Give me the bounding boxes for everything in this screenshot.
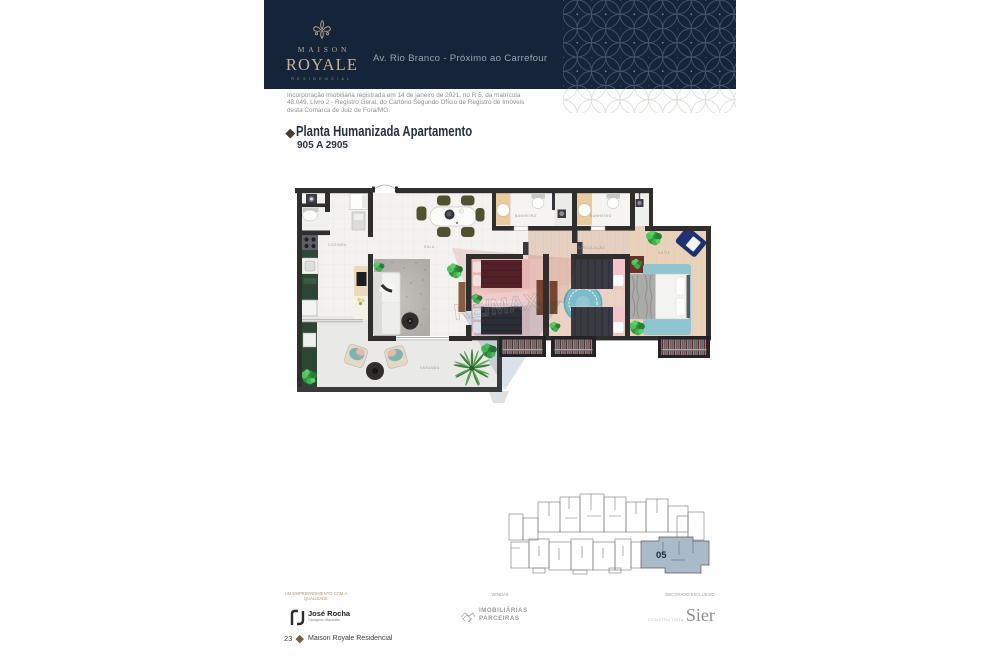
svg-text:CIRCULAÇÃO: CIRCULAÇÃO [578,245,605,250]
svg-text:05: 05 [656,550,667,561]
svg-text:COZINHA: COZINHA [328,243,347,247]
svg-text:BANHEIRO: BANHEIRO [515,214,537,218]
svg-text:VARANDA: VARANDA [420,366,440,370]
svg-text:BANHEIRO: BANHEIRO [590,214,612,218]
svg-text:SALA: SALA [424,245,435,249]
svg-text:SUÍTE: SUÍTE [658,251,671,255]
